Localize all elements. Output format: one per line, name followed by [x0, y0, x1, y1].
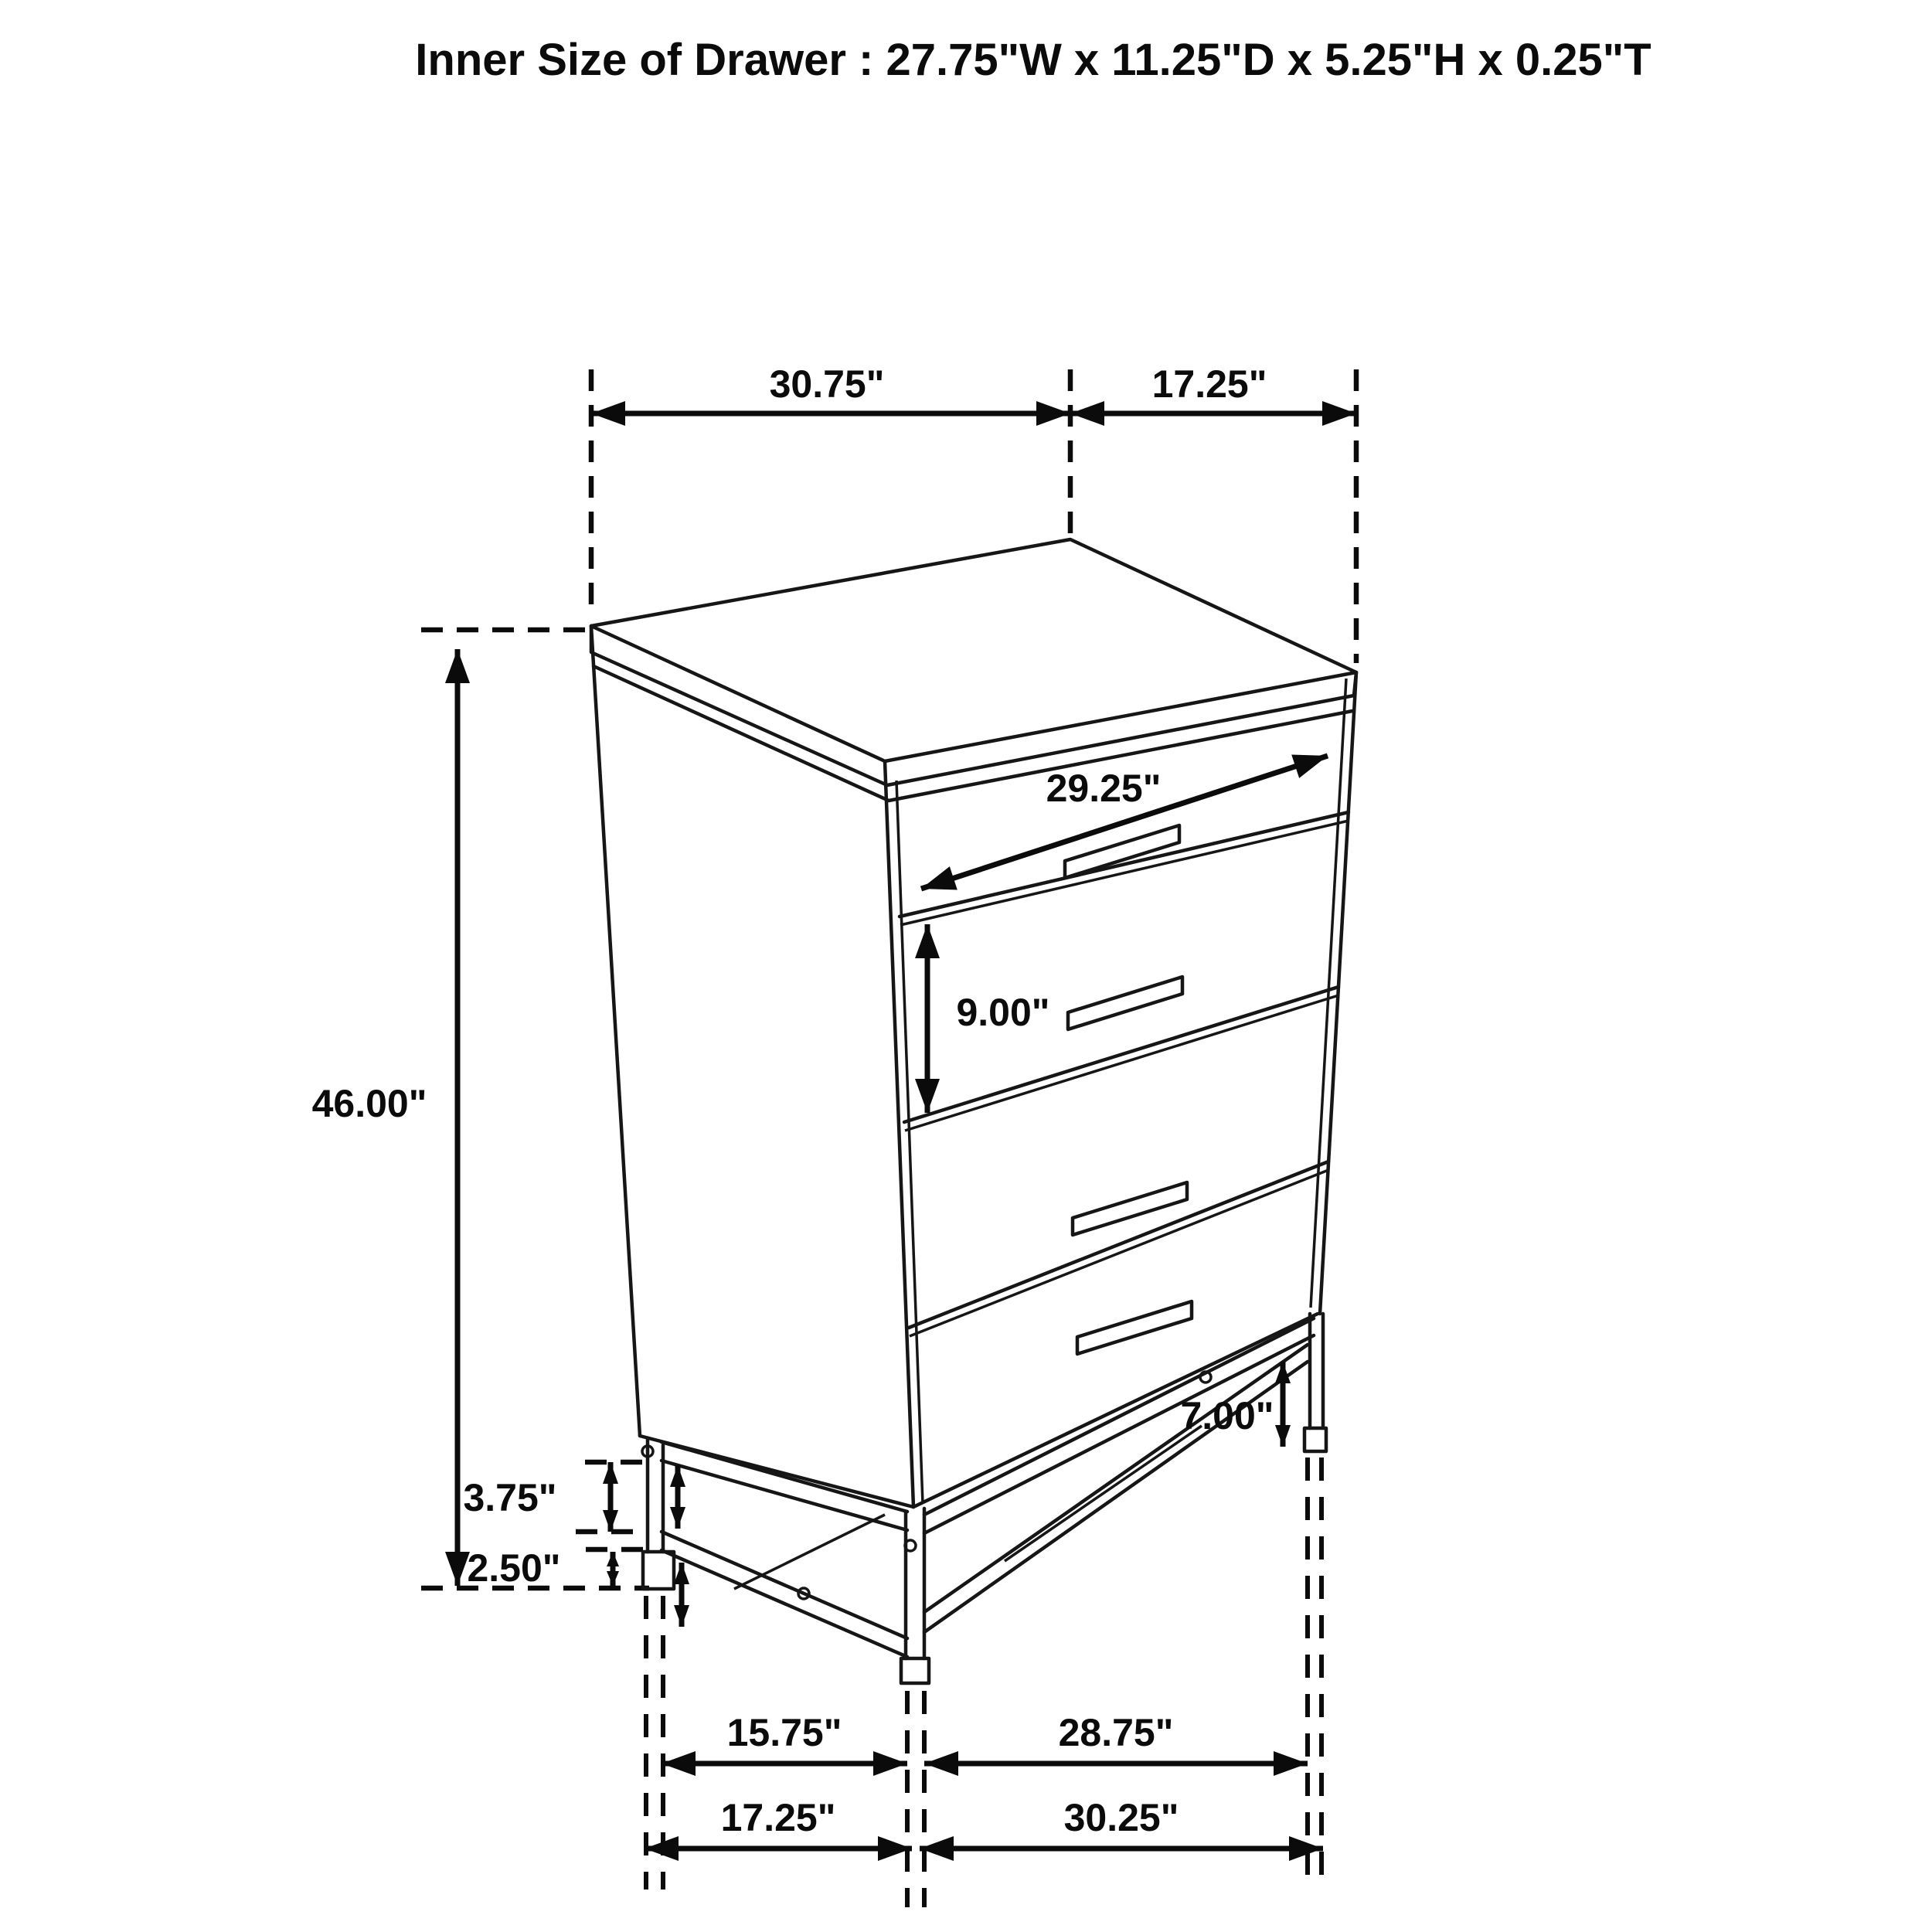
left-lower-rail-top [662, 1532, 907, 1638]
rear-right-foot [1304, 1428, 1326, 1451]
label-leg-clearance: 7.00" [1180, 1394, 1274, 1437]
left-diagonal-brace [734, 1515, 885, 1589]
cabinet-right-edge [1320, 672, 1356, 1314]
drawer-handle-4 [1077, 1301, 1192, 1354]
label-top-width: 30.75" [770, 362, 885, 406]
drawer-handle-1 [1065, 825, 1179, 878]
drawer-handles [1065, 825, 1192, 1354]
drawer-handle-3 [1073, 1182, 1187, 1235]
drawer-divider-3 [909, 1162, 1328, 1328]
label-drawer-width: 29.25" [1046, 767, 1162, 810]
drawer-divider-3-inner [910, 1170, 1328, 1336]
label-drawer-height: 9.00" [956, 991, 1049, 1034]
label-top-depth: 17.25" [1152, 362, 1267, 406]
diagram-title: Inner Size of Drawer : 27.75"W x 11.25"D… [415, 35, 1651, 85]
drawer-dividers [900, 812, 1349, 1336]
drawer-handle-2 [1068, 977, 1182, 1029]
base-frame [642, 1314, 1326, 1683]
drawer-divider-1 [900, 812, 1349, 917]
cabinet-top-face [591, 539, 1356, 761]
extension-lines [421, 369, 1356, 1907]
label-base-inner-depth: 15.75" [727, 1711, 842, 1754]
left-upper-rail-top [662, 1442, 907, 1512]
label-base-outer-width: 30.25" [1064, 1796, 1179, 1839]
label-overall-height: 46.00" [312, 1082, 427, 1125]
cabinet-top-slab-edge [591, 626, 1356, 785]
label-foot-height: 2.50" [467, 1546, 560, 1590]
dimension-diagram-page: Inner Size of Drawer : 27.75"W x 11.25"D… [0, 0, 1932, 1932]
right-diagonal-brace [1005, 1426, 1202, 1561]
front-left-foot [643, 1552, 674, 1589]
front-center-foot [901, 1658, 929, 1683]
cabinet-top-slab-bottom [594, 666, 1352, 801]
cabinet-left-edge [591, 626, 640, 1436]
label-base-inner-width: 28.75" [1059, 1711, 1174, 1754]
left-lower-rail-bottom [662, 1550, 907, 1657]
right-lower-rail-top [924, 1345, 1308, 1612]
chest-dimension-diagram: Inner Size of Drawer : 27.75"W x 11.25"D… [0, 0, 1932, 1932]
label-rail-gap: 3.75" [463, 1476, 556, 1519]
label-base-outer-depth: 17.25" [721, 1796, 836, 1839]
